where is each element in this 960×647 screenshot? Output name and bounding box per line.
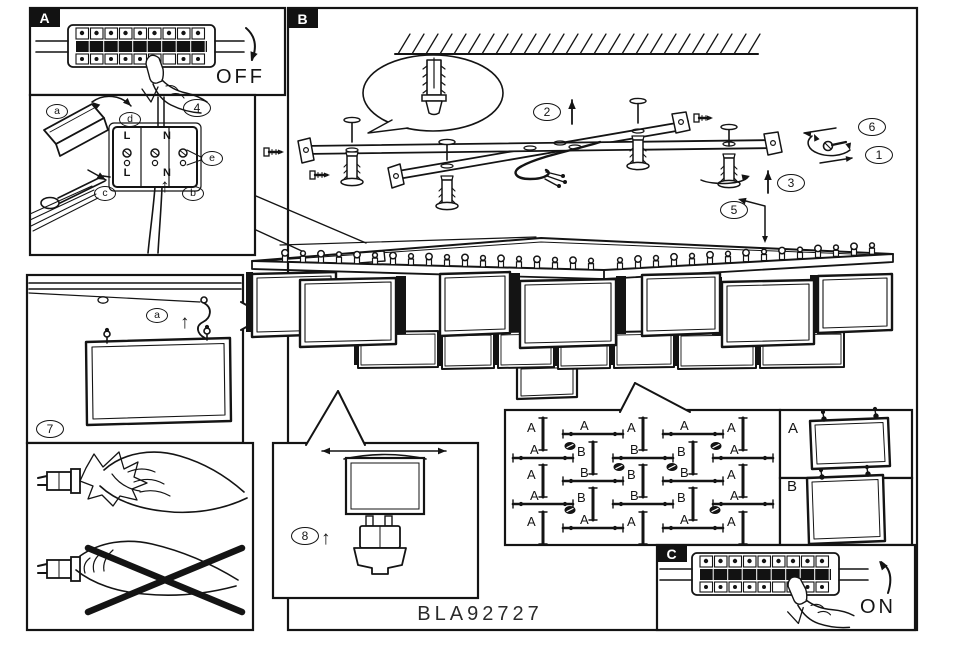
terminal-n-top: N bbox=[160, 130, 174, 142]
layout-cell-label: A bbox=[730, 488, 739, 503]
step-1-badge: 1 bbox=[865, 146, 893, 164]
terminal-strip bbox=[660, 553, 868, 595]
layout-cell-label: A bbox=[680, 418, 689, 433]
layout-cell-label: A bbox=[727, 514, 736, 529]
layout-cell-label: A bbox=[530, 488, 539, 503]
screw-icon bbox=[694, 114, 713, 122]
layout-cell-label: A bbox=[527, 467, 536, 482]
layout-cell-label: A bbox=[680, 512, 689, 527]
terminal-strip bbox=[36, 25, 244, 67]
screw-head-icon bbox=[614, 464, 624, 471]
layout-cell-label: A bbox=[527, 514, 536, 529]
step-8-badge: 8 bbox=[291, 527, 319, 545]
screw-icon bbox=[264, 148, 284, 156]
power-on-label: ON bbox=[860, 596, 896, 619]
layout-cell-label: B bbox=[630, 442, 639, 457]
terminal-l-top: L bbox=[120, 130, 134, 142]
panel-c-tab: C bbox=[657, 545, 687, 562]
step-3-badge: 3 bbox=[777, 174, 805, 192]
callout-b-badge: b bbox=[182, 186, 204, 201]
shade-type-b-label: B bbox=[787, 478, 797, 495]
shade-type-a-label: A bbox=[788, 420, 798, 437]
instruction-sheet: A B C OFF ON 2 6 1 3 5 4 7 8 a d e c b a… bbox=[0, 0, 960, 647]
step-markers bbox=[568, 100, 772, 243]
panel-a-tab: A bbox=[30, 8, 60, 27]
layout-cell-label: A bbox=[627, 420, 636, 435]
layout-cell-label: B bbox=[577, 444, 586, 459]
power-off-label: OFF bbox=[216, 66, 265, 89]
screw-head-icon bbox=[710, 507, 720, 514]
screw-head-icon bbox=[565, 507, 575, 514]
screw-head-icon bbox=[667, 464, 677, 471]
step-7-badge: 7 bbox=[36, 420, 64, 438]
layout-cell-label: B bbox=[580, 465, 589, 480]
up-arrow-icon: ↑ bbox=[321, 528, 331, 550]
mounting-rails bbox=[298, 112, 782, 188]
layout-cell-label: B bbox=[627, 467, 636, 482]
callout-e-badge: e bbox=[201, 151, 223, 166]
step-4-badge: 4 bbox=[183, 99, 211, 117]
rotate-screw-icon bbox=[804, 128, 854, 163]
product-code: BLA92727 bbox=[396, 603, 564, 626]
layout-cell-label: B bbox=[630, 488, 639, 503]
step-2-badge: 2 bbox=[533, 103, 561, 121]
layout-cell-label: A bbox=[527, 420, 536, 435]
terminal-l-bottom: L bbox=[120, 167, 134, 179]
step-5-badge: 5 bbox=[720, 201, 748, 219]
screw-head-icon bbox=[565, 443, 575, 450]
layout-cell-label: A bbox=[627, 514, 636, 529]
panel-b-tab: B bbox=[288, 9, 318, 28]
layout-cell-label: A bbox=[580, 418, 589, 433]
callout-a7-badge: a bbox=[146, 308, 168, 323]
layout-cell-label: B bbox=[677, 444, 686, 459]
callout-a-badge: a bbox=[46, 104, 68, 119]
layout-cell-label: A bbox=[530, 442, 539, 457]
step-6-badge: 6 bbox=[858, 118, 886, 136]
layout-cell-label: A bbox=[727, 420, 736, 435]
ceiling-hatch bbox=[395, 34, 760, 54]
shade-type-b-art bbox=[807, 465, 885, 544]
layout-cell-label: B bbox=[680, 465, 689, 480]
lamp-assembly bbox=[246, 237, 893, 399]
screw-icon bbox=[310, 171, 330, 179]
diagram-lineart bbox=[0, 0, 960, 647]
callout-c-badge: c bbox=[94, 186, 116, 201]
layout-cell-label: A bbox=[580, 512, 589, 527]
screw-anchor-assembly bbox=[701, 124, 751, 187]
screw-head-icon bbox=[711, 443, 721, 450]
callout-d-badge: d bbox=[119, 112, 141, 127]
up-arrow-icon: ↑ bbox=[160, 176, 170, 198]
up-arrow-icon: ↑ bbox=[180, 312, 190, 334]
layout-cell-label: A bbox=[727, 467, 736, 482]
layout-cell-label: A bbox=[730, 442, 739, 457]
wall-anchor-balloon bbox=[363, 55, 503, 133]
layout-cell-label: B bbox=[577, 490, 586, 505]
layout-cell-label: B bbox=[677, 490, 686, 505]
